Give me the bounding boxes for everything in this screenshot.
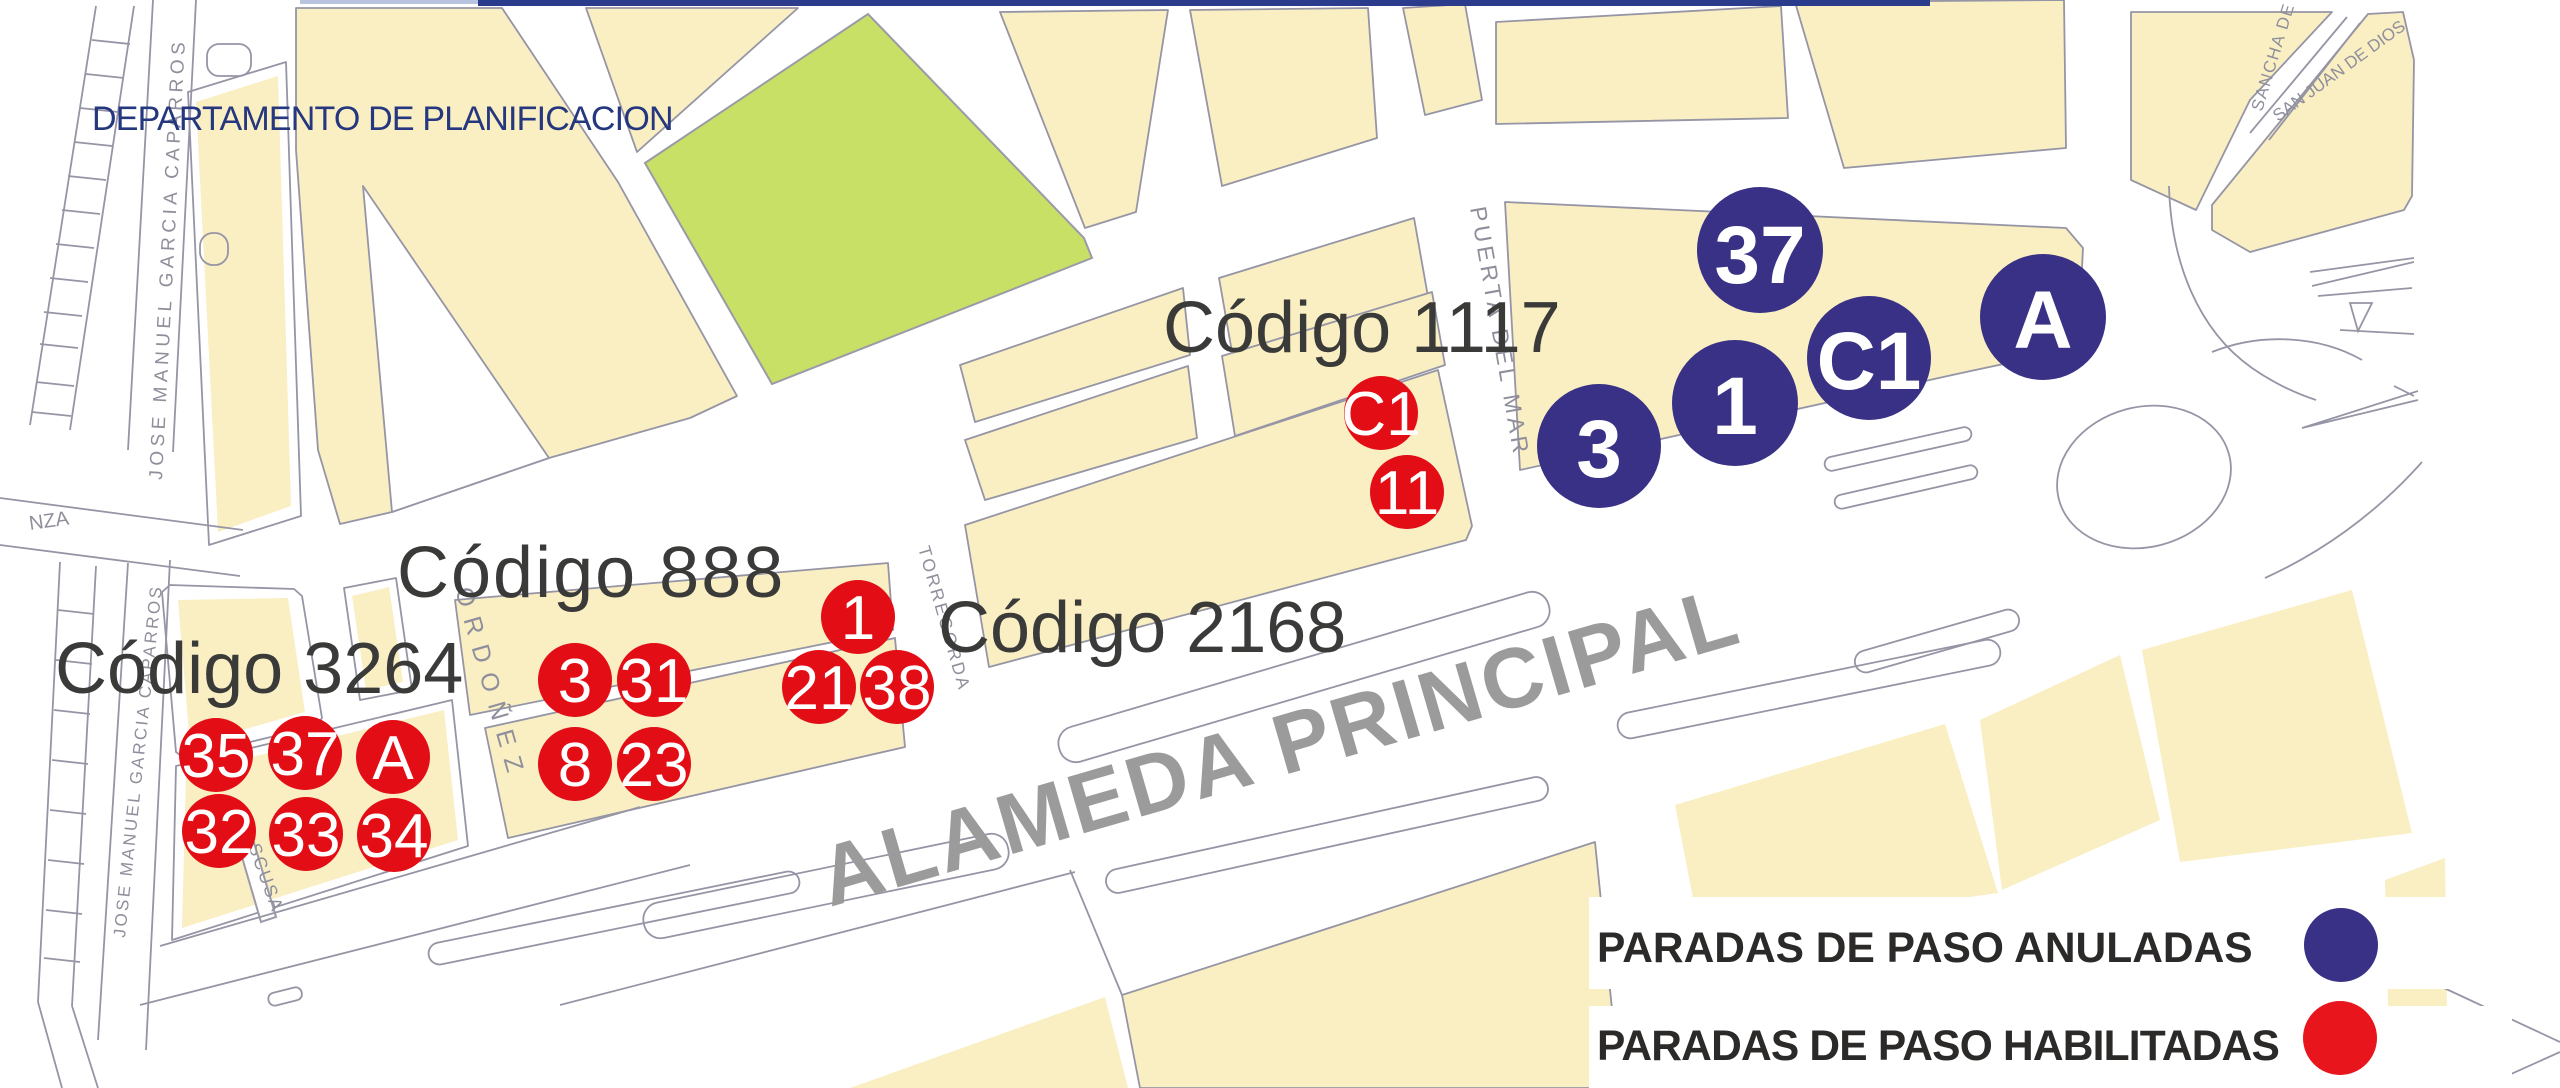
svg-text:38: 38 — [863, 654, 932, 723]
svg-text:A: A — [2013, 275, 2072, 366]
svg-text:Código 2168: Código 2168 — [938, 588, 1346, 668]
svg-text:8: 8 — [558, 731, 592, 800]
svg-text:23: 23 — [620, 731, 689, 800]
svg-text:A: A — [372, 724, 414, 793]
svg-text:1: 1 — [1712, 361, 1758, 452]
svg-text:32: 32 — [185, 798, 254, 867]
svg-text:21: 21 — [785, 654, 854, 723]
svg-text:DEPARTAMENTO DE PLANIFICACION: DEPARTAMENTO DE PLANIFICACION — [92, 100, 673, 138]
svg-text:1: 1 — [841, 584, 875, 653]
svg-text:Código 888: Código 888 — [397, 533, 785, 613]
svg-text:Código 1117: Código 1117 — [1163, 288, 1561, 368]
svg-text:31: 31 — [620, 647, 689, 716]
svg-text:37: 37 — [271, 720, 340, 789]
svg-text:3: 3 — [1576, 404, 1622, 495]
svg-text:34: 34 — [360, 802, 429, 871]
svg-text:PARADAS DE PASO HABILITADAS: PARADAS DE PASO HABILITADAS — [1597, 1023, 2279, 1070]
svg-text:11: 11 — [1375, 459, 1439, 528]
svg-text:C1: C1 — [1341, 380, 1420, 449]
svg-text:37: 37 — [1714, 210, 1805, 301]
svg-text:3: 3 — [558, 647, 592, 716]
svg-text:33: 33 — [272, 801, 341, 870]
svg-text:35: 35 — [182, 722, 251, 791]
svg-text:C1: C1 — [1817, 316, 1922, 407]
svg-text:PARADAS DE PASO ANULADAS: PARADAS DE PASO ANULADAS — [1597, 925, 2253, 972]
svg-text:Código 3264: Código 3264 — [55, 629, 463, 709]
